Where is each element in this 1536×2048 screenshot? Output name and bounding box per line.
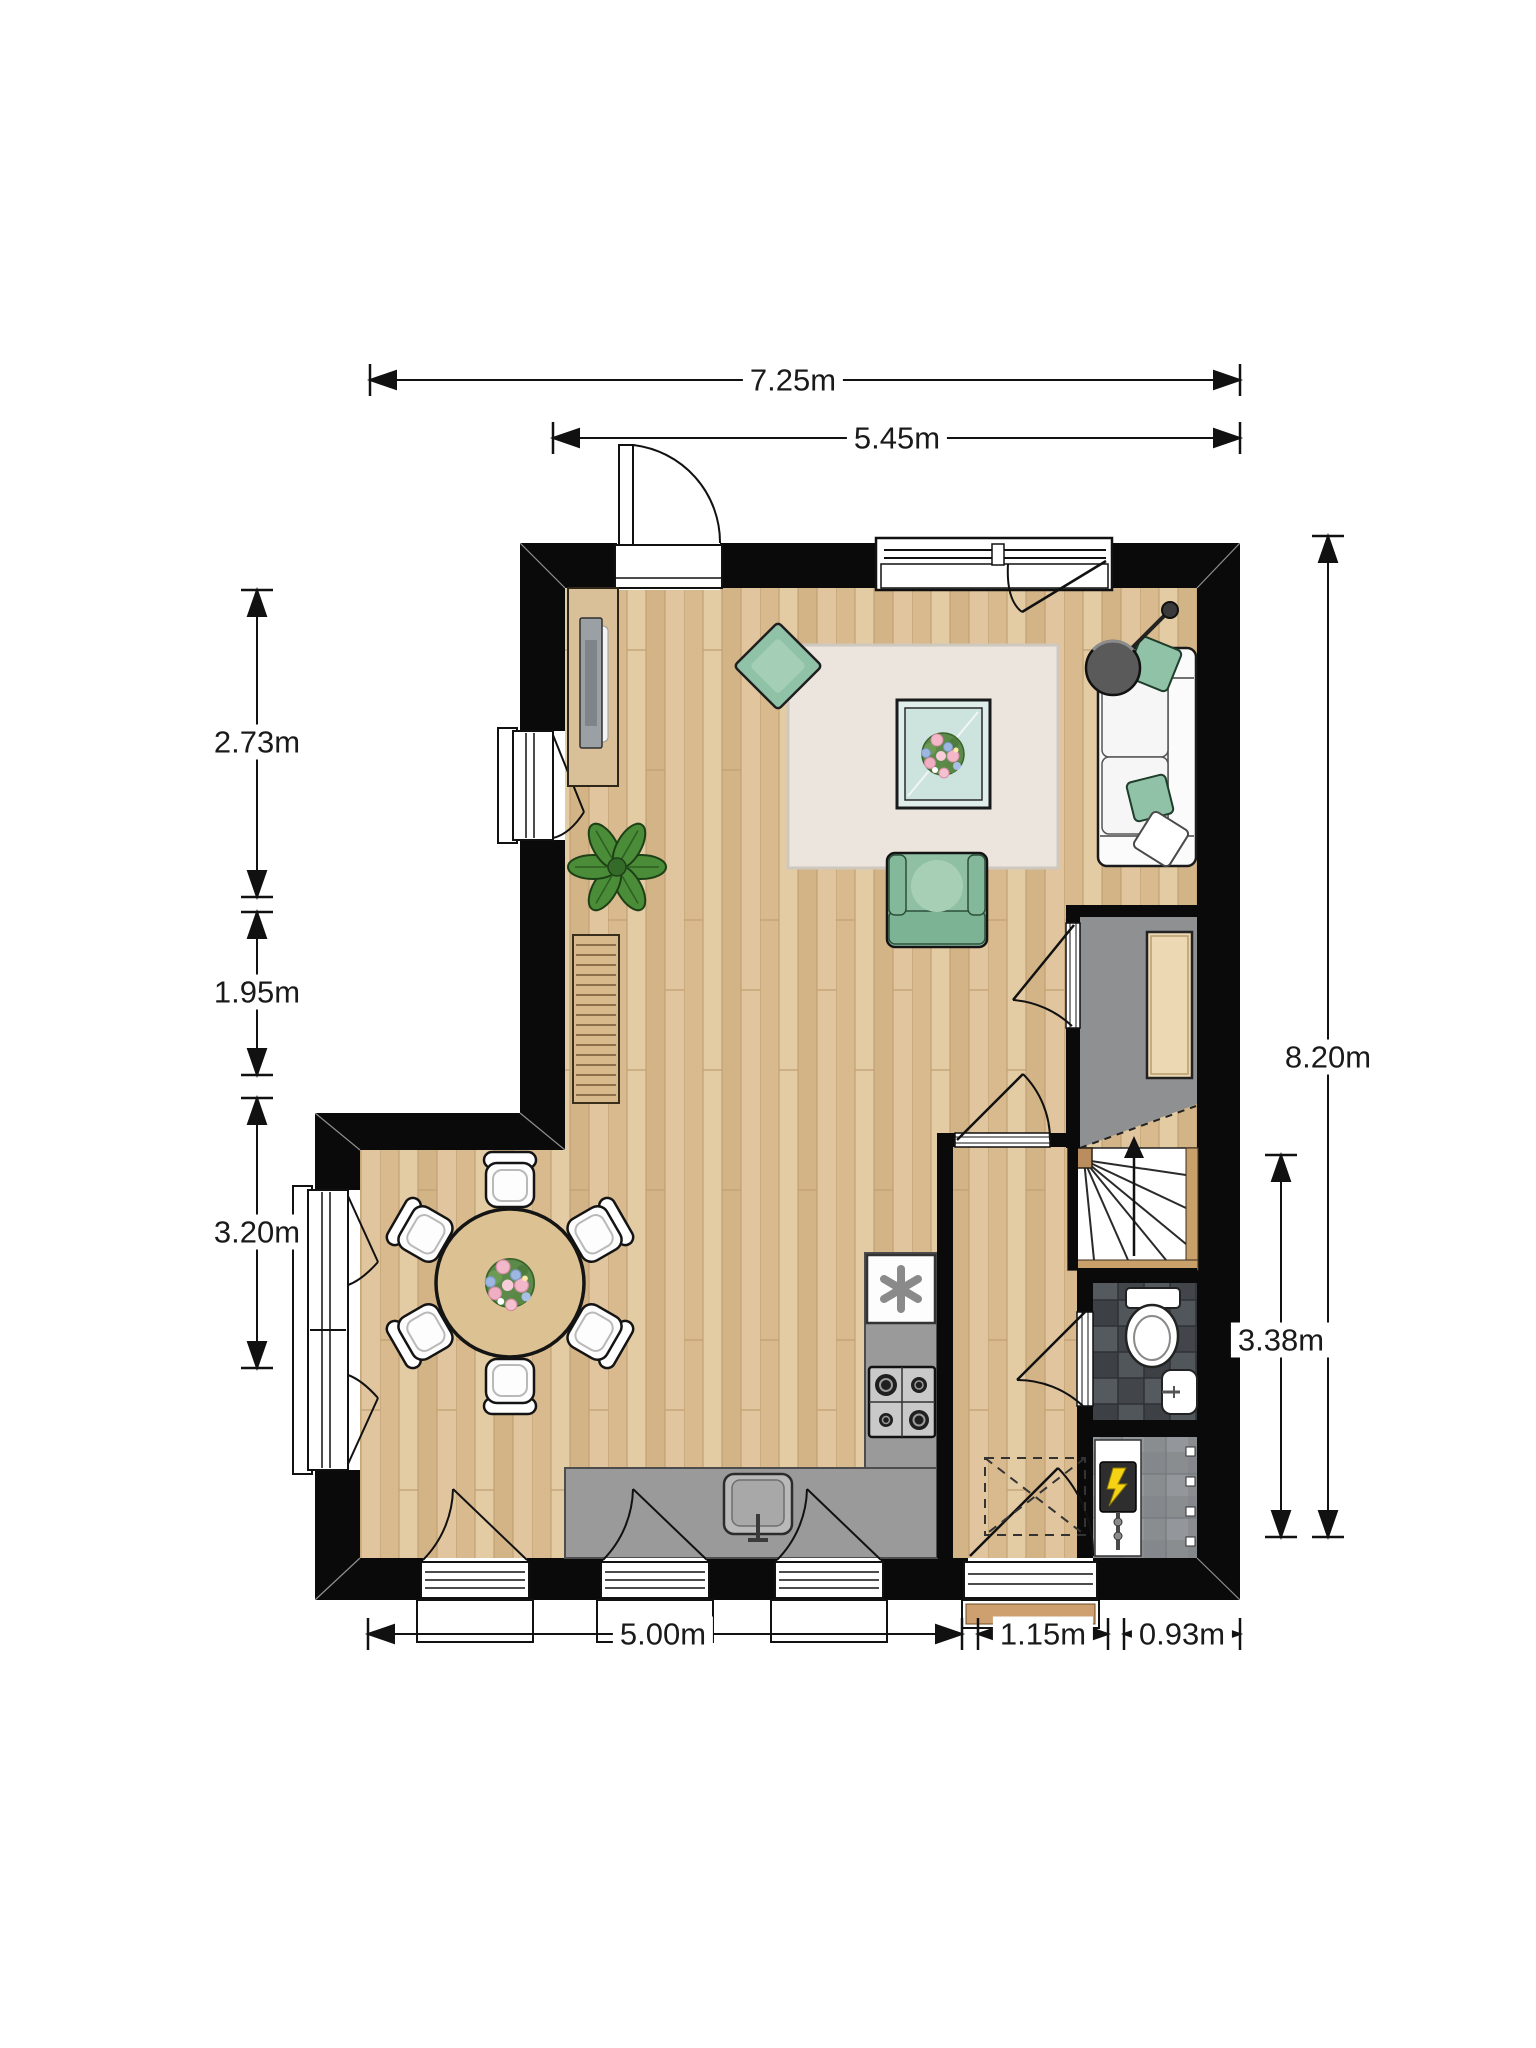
dimension-label-right-overall: 8.20m [1278, 1040, 1378, 1075]
dining-chair [484, 1359, 536, 1414]
bathroom-sink [1162, 1370, 1197, 1414]
cooktop [869, 1367, 935, 1437]
floor-plan-page: 7.25m 5.45m 2.73m 1.95m 3.20m 8.20m 3.38… [0, 0, 1536, 2048]
dimension-label-top-living: 5.45m [847, 421, 947, 456]
entrance-door [615, 445, 722, 590]
dining-chair [484, 1152, 536, 1207]
dimension-label-left-upper: 2.73m [207, 725, 307, 760]
fridge-freezer [867, 1255, 935, 1323]
dimension-right-overall [1312, 536, 1344, 1537]
floor-plan-drawing [0, 0, 1536, 2048]
armchair [887, 853, 987, 947]
coffee-table [897, 700, 990, 808]
dimension-label-left-middle: 1.95m [207, 975, 307, 1010]
sideboard [568, 588, 618, 786]
dimension-label-bottom-hall: 1.15m [993, 1617, 1093, 1652]
dimension-label-bottom-kitchen: 5.00m [613, 1617, 713, 1652]
dimension-label-bottom-meter: 0.93m [1132, 1617, 1232, 1652]
toilet [1126, 1288, 1180, 1367]
kitchen-sink [724, 1474, 792, 1542]
hall-bench [1147, 932, 1192, 1078]
dimension-label-right-lower: 3.38m [1231, 1323, 1331, 1358]
radiator [573, 935, 619, 1103]
dimension-label-top-overall: 7.25m [743, 363, 843, 398]
dimension-label-left-lower: 3.20m [207, 1215, 307, 1250]
